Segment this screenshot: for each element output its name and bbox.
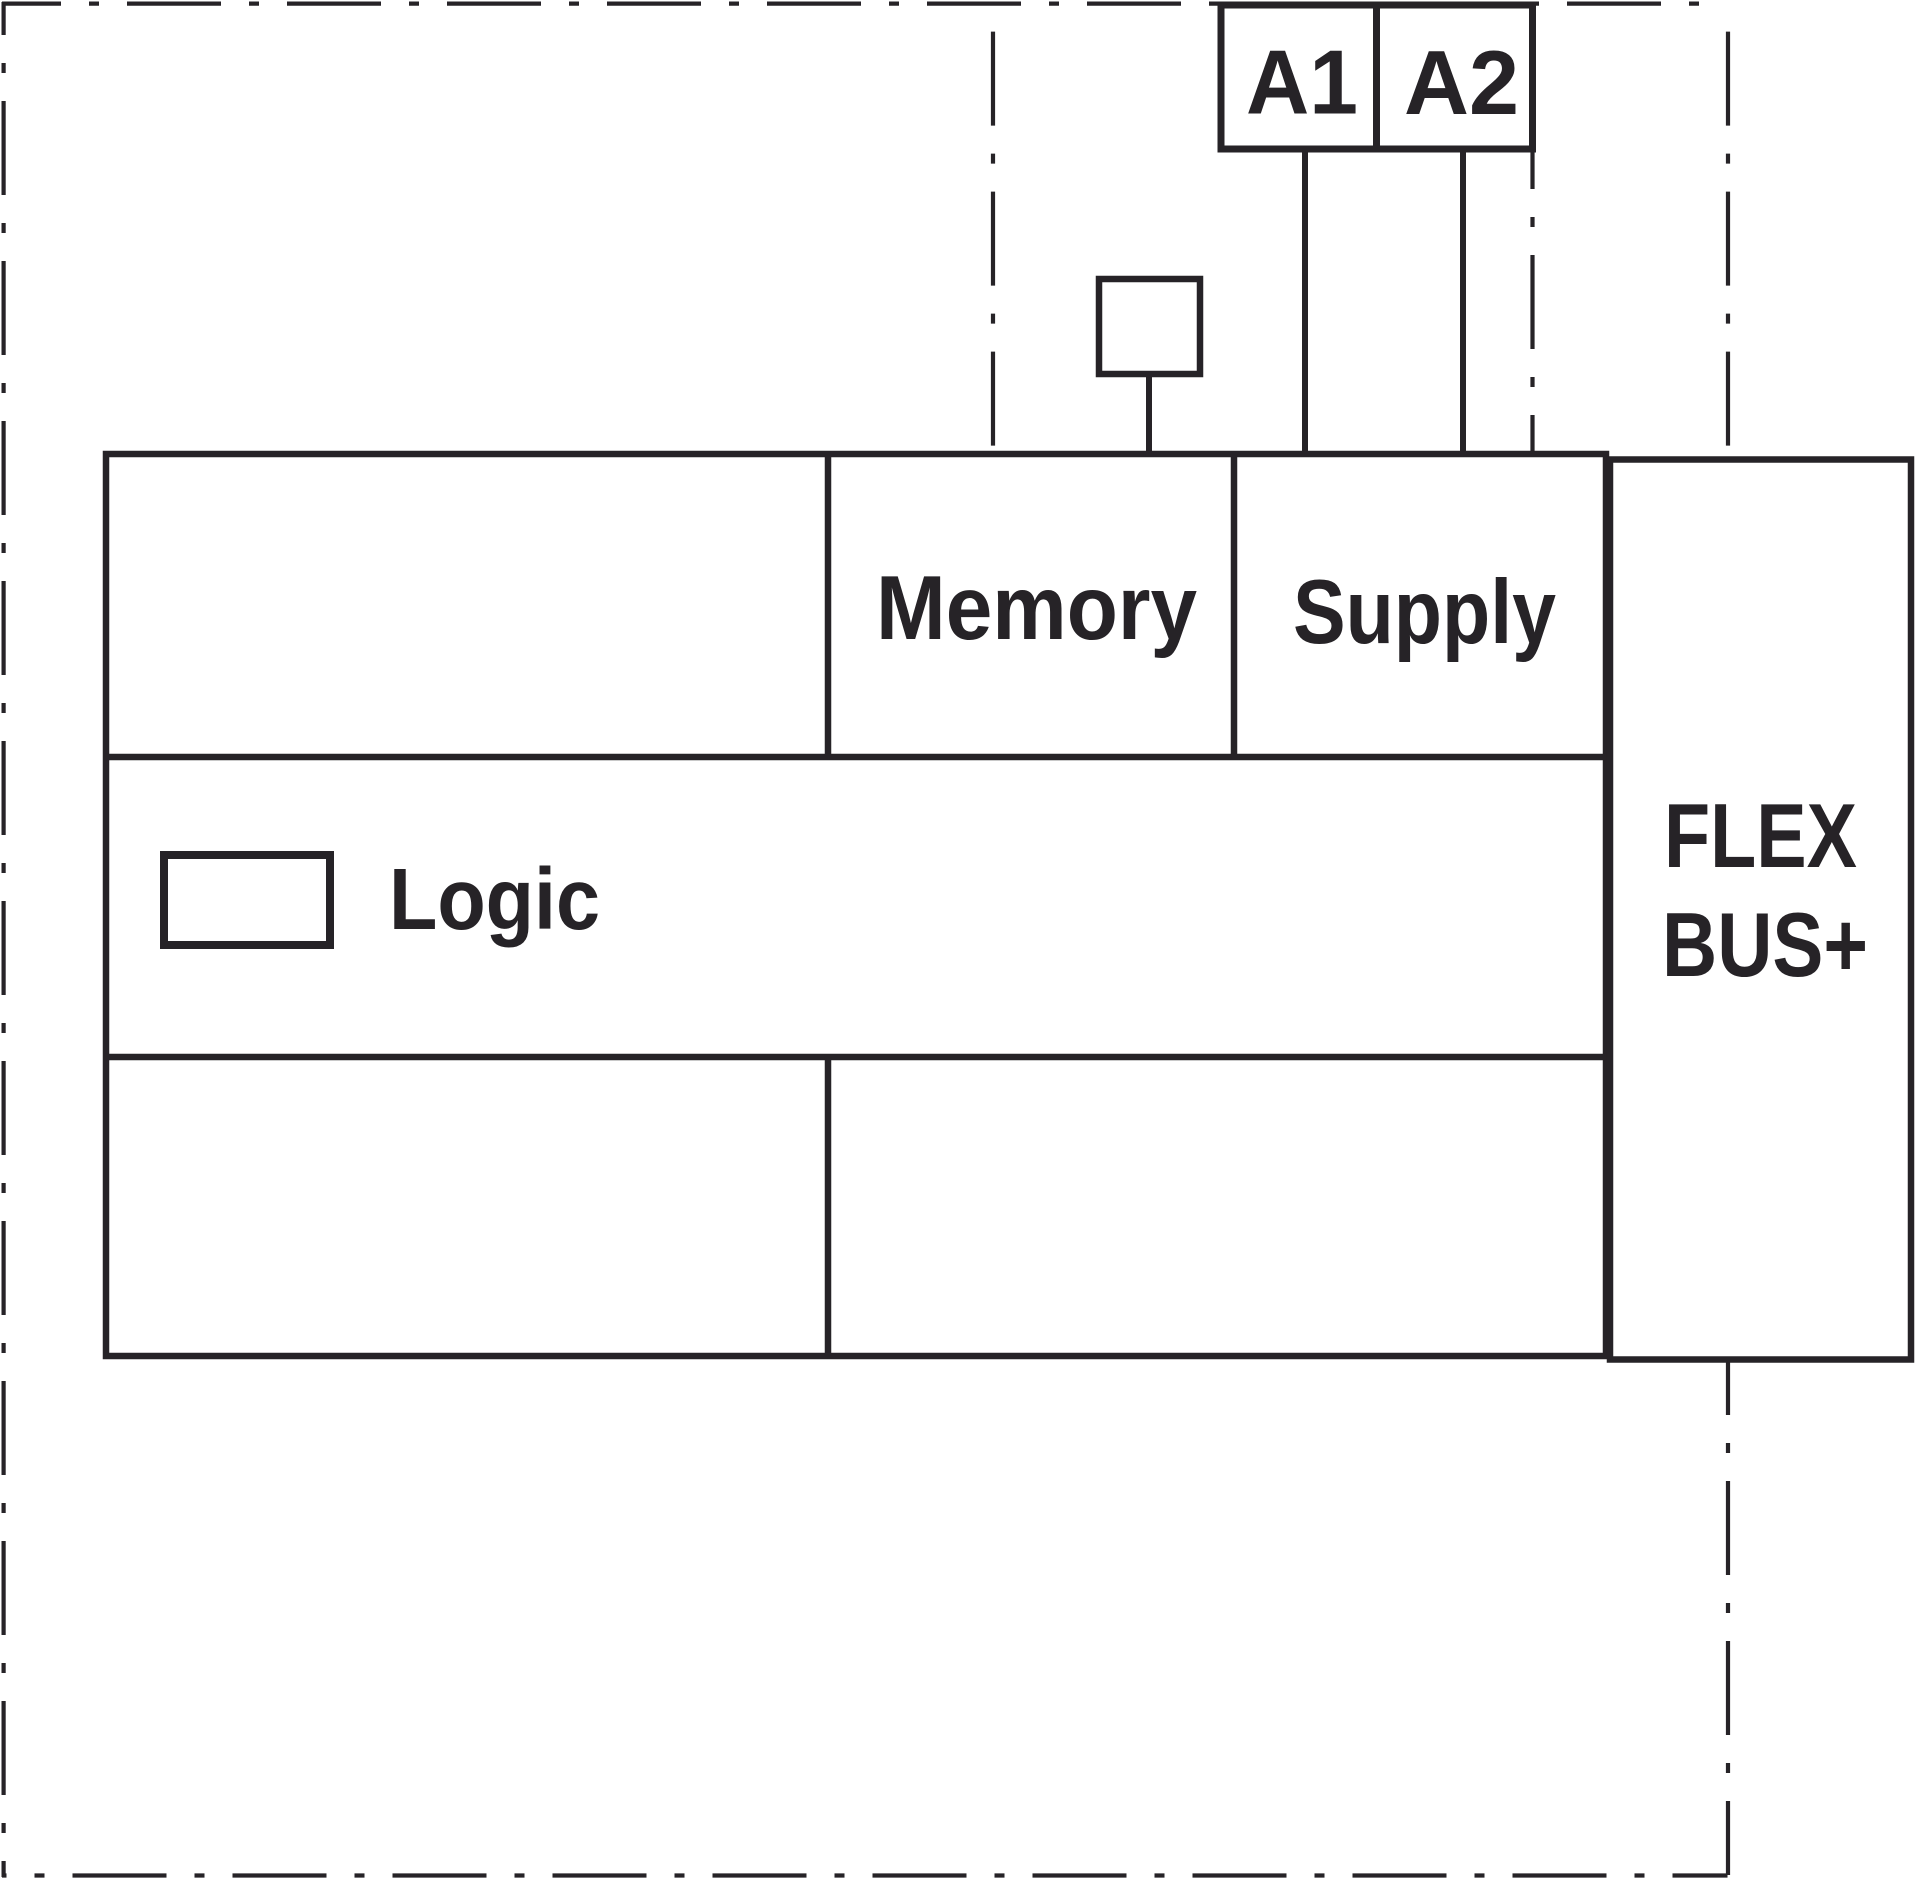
svg-text:Logic: Logic — [389, 851, 600, 948]
svg-text:Memory: Memory — [876, 558, 1197, 659]
svg-text:FLEX: FLEX — [1664, 786, 1857, 887]
svg-text:A2: A2 — [1404, 33, 1519, 134]
svg-text:Supply: Supply — [1293, 562, 1556, 663]
svg-text:A1: A1 — [1246, 33, 1358, 134]
svg-text:BUS+: BUS+ — [1662, 895, 1868, 996]
